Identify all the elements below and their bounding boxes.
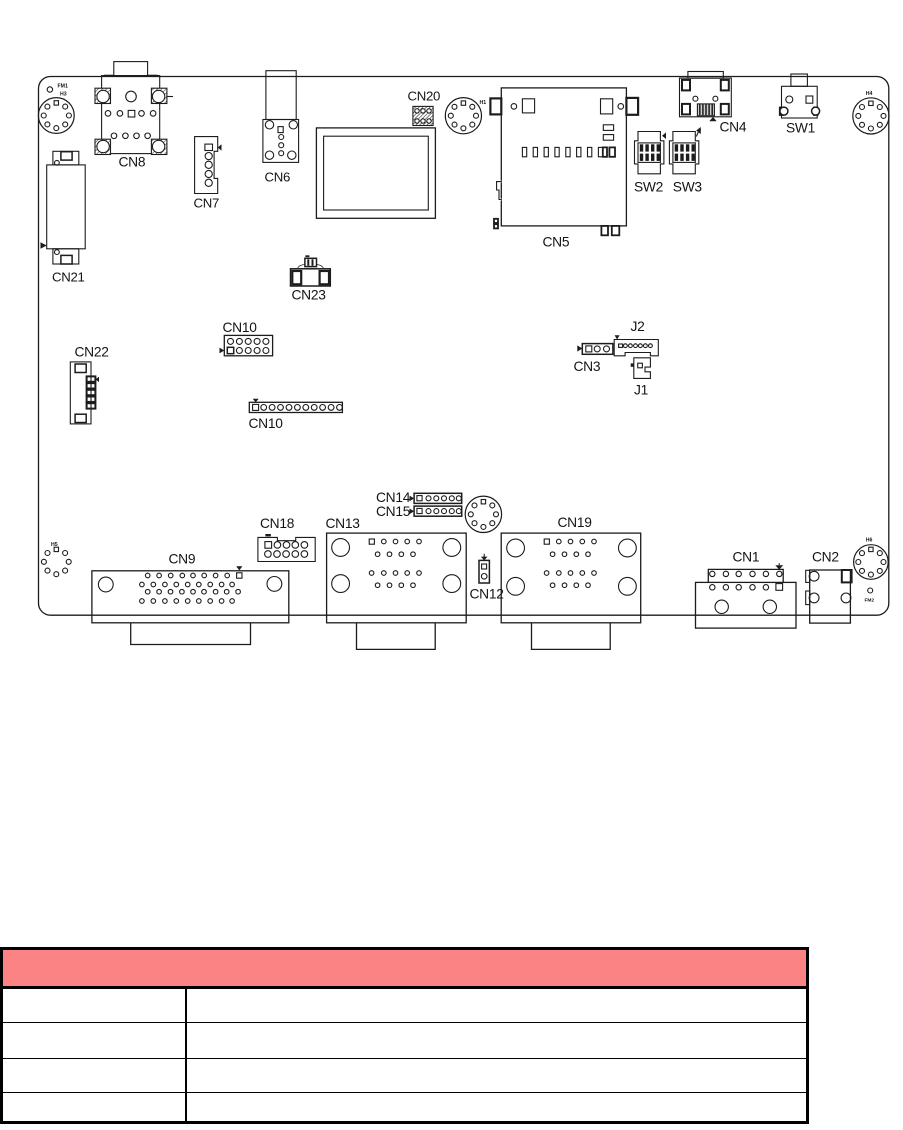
svg-text:J1: J1 — [634, 383, 648, 398]
svg-text:CN9: CN9 — [169, 552, 196, 567]
svg-text:CN15: CN15 — [376, 504, 411, 519]
svg-text:CN10: CN10 — [223, 320, 258, 335]
svg-text:H4: H4 — [866, 91, 873, 97]
svg-text:CN19: CN19 — [558, 515, 593, 530]
svg-text:CN12: CN12 — [470, 587, 504, 602]
svg-text:CN1: CN1 — [733, 550, 760, 565]
svg-text:CN20: CN20 — [408, 89, 441, 104]
svg-text:CN3: CN3 — [574, 359, 601, 374]
svg-text:CN14: CN14 — [376, 490, 411, 505]
svg-text:CN7: CN7 — [194, 196, 219, 211]
svg-text:CN2: CN2 — [812, 550, 839, 565]
svg-text:FM1: FM1 — [58, 84, 68, 90]
svg-text:CN4: CN4 — [720, 120, 747, 135]
svg-text:SW2: SW2 — [634, 180, 663, 195]
svg-text:SW3: SW3 — [673, 180, 703, 195]
svg-text:H5: H5 — [51, 542, 58, 548]
svg-text:SW1: SW1 — [786, 121, 815, 136]
svg-text:FM2: FM2 — [865, 598, 875, 604]
svg-text:CN21: CN21 — [52, 270, 85, 285]
svg-text:CN6: CN6 — [265, 170, 290, 185]
svg-text:CN8: CN8 — [119, 155, 146, 170]
svg-text:CN23: CN23 — [292, 288, 327, 303]
svg-text:CN13: CN13 — [326, 516, 361, 531]
svg-text:H1: H1 — [480, 100, 487, 106]
svg-text:J2: J2 — [631, 319, 645, 334]
svg-text:H6: H6 — [866, 538, 873, 544]
svg-text:H3: H3 — [60, 92, 67, 98]
svg-text:CN22: CN22 — [75, 345, 109, 360]
svg-text:CN18: CN18 — [260, 516, 295, 531]
svg-text:CN10: CN10 — [249, 416, 284, 431]
svg-text:CN5: CN5 — [543, 235, 570, 250]
